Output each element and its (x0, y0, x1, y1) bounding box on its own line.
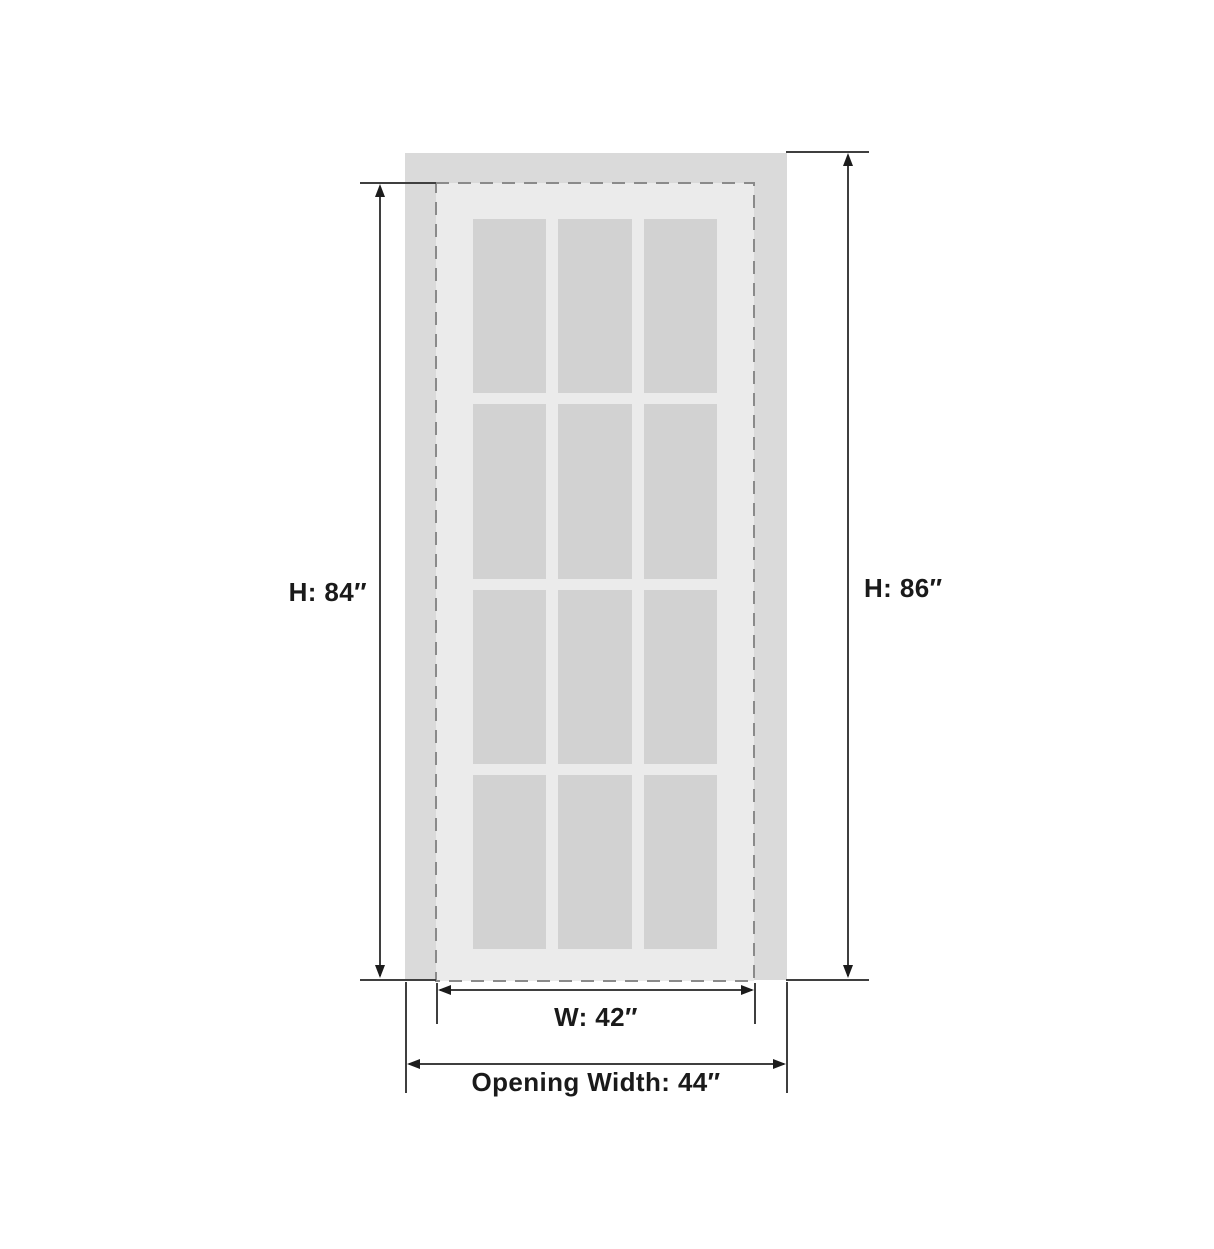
arrow-left-icon (407, 1059, 420, 1069)
opening-width-label: Opening Width: 44″ (446, 1068, 746, 1096)
arrow-right-icon (741, 985, 754, 995)
arrow-left-icon (438, 985, 451, 995)
arrow-right-icon (773, 1059, 786, 1069)
door-width-label: W: 42″ (496, 1003, 696, 1031)
opening-width-right-ext (786, 982, 788, 1093)
door-height-label: H: 84″ (245, 578, 367, 606)
opening-width-dimension-line (409, 1063, 784, 1065)
door-width-right-ext (754, 983, 756, 1024)
door-height-top-cap (360, 182, 436, 184)
door-height-dimension-line (379, 187, 381, 976)
opening-height-top-cap (786, 151, 869, 153)
opening-height-label: H: 86″ (864, 574, 1024, 602)
arrow-down-icon (843, 965, 853, 978)
door-width-dimension-line (440, 989, 752, 991)
door-slab-outline (435, 182, 755, 982)
door-dimension-diagram: H: 84″ H: 86″ W: 42″ Opening Width: 44″ (0, 0, 1214, 1249)
arrow-up-icon (843, 153, 853, 166)
opening-height-dimension-line (847, 156, 849, 976)
arrow-down-icon (375, 965, 385, 978)
door-height-bottom-cap (360, 979, 436, 981)
arrow-up-icon (375, 184, 385, 197)
opening-width-left-ext (405, 982, 407, 1093)
opening-height-bottom-cap (786, 979, 869, 981)
